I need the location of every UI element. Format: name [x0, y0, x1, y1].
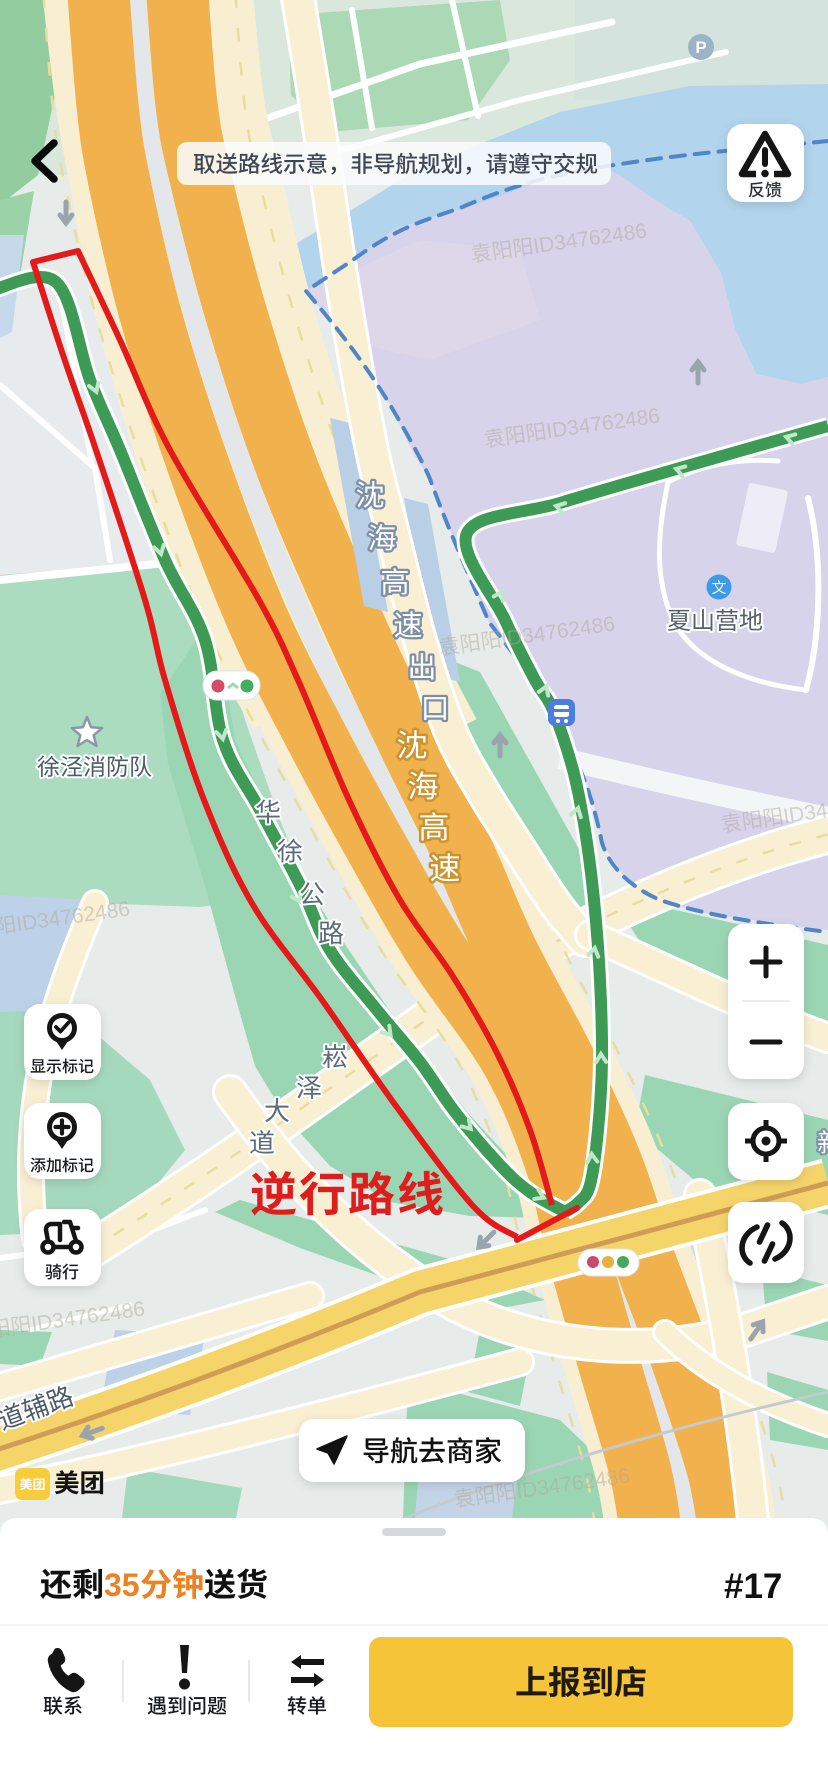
svg-text:#17: #17 — [724, 1567, 782, 1606]
svg-text:35: 35 — [104, 1567, 140, 1603]
svg-text:P: P — [695, 38, 706, 57]
